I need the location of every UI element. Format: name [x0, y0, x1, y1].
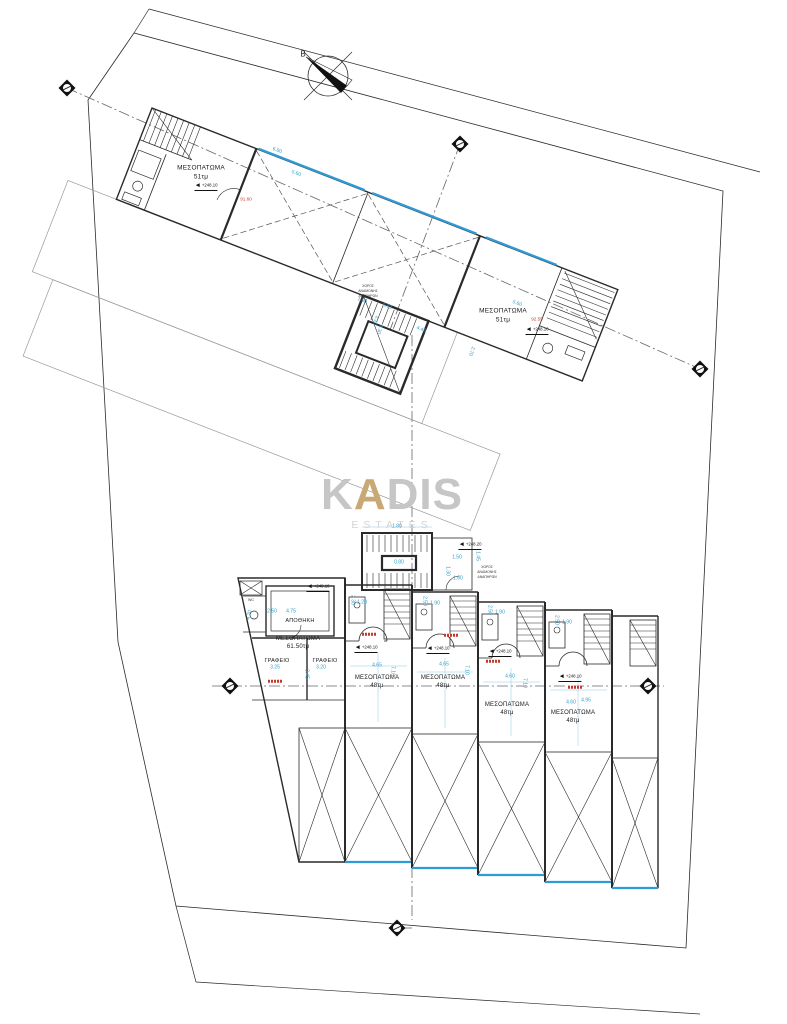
lower-unit-strip-5 [612, 610, 658, 888]
core-lobby [432, 538, 472, 590]
void-strip-4 [545, 752, 612, 882]
watermark: KADIS ESTATES [321, 473, 463, 531]
watermark-letters-dis: DIS [387, 470, 463, 519]
ground-floor-outline [32, 180, 457, 423]
lower-stair-core [362, 527, 472, 590]
storage-room [266, 586, 334, 636]
lower-unit-strip-2 [412, 585, 478, 868]
survey-marker-3 [692, 361, 709, 378]
survey-marker-1 [59, 80, 76, 97]
survey-marker-6 [389, 920, 406, 937]
lower-unit-main [238, 578, 345, 862]
watermark-letter-k: K [321, 470, 354, 519]
north-arrow [306, 57, 352, 93]
void-strip-3 [478, 742, 545, 875]
arched-opening [559, 652, 587, 666]
upper-central-stair [335, 296, 429, 394]
void-strip-2 [412, 734, 478, 868]
watermark-letter-a: A [354, 470, 387, 519]
upper-glazing [259, 149, 557, 265]
upper-right-bathroom [531, 326, 595, 369]
void-strip-1 [345, 728, 412, 862]
void-unit-main [299, 728, 345, 862]
watermark-subtitle: ESTATES [321, 519, 463, 531]
void-strip-5 [612, 758, 658, 888]
survey-marker-4 [222, 678, 239, 695]
lower-building [238, 527, 658, 888]
survey-marker-5 [640, 678, 657, 695]
arched-opening [359, 627, 387, 641]
bottom-road [176, 906, 700, 1014]
lower-unit-strip-1 [345, 578, 412, 862]
door-arc [217, 183, 240, 206]
upper-building [3, 88, 619, 548]
upper-left-bathroom [119, 144, 166, 210]
wc-fixture [250, 611, 258, 619]
upper-void-2 [334, 195, 478, 325]
survey-marker-2 [452, 136, 469, 153]
lower-unit-strip-3 [478, 592, 545, 875]
top-road [134, 9, 760, 172]
upper-void-1 [222, 151, 366, 281]
north-indicator [304, 52, 352, 100]
floor-plan-page: KADIS ESTATES Β ΜΕΣΟΠΑΤΩΜΑ 51τμ 91.60 ΜΕ… [0, 0, 787, 1024]
lower-unit-strip-4 [545, 602, 612, 882]
arched-opening [492, 644, 520, 658]
watermark-title: KADIS [321, 470, 463, 519]
door-arc [446, 576, 460, 590]
